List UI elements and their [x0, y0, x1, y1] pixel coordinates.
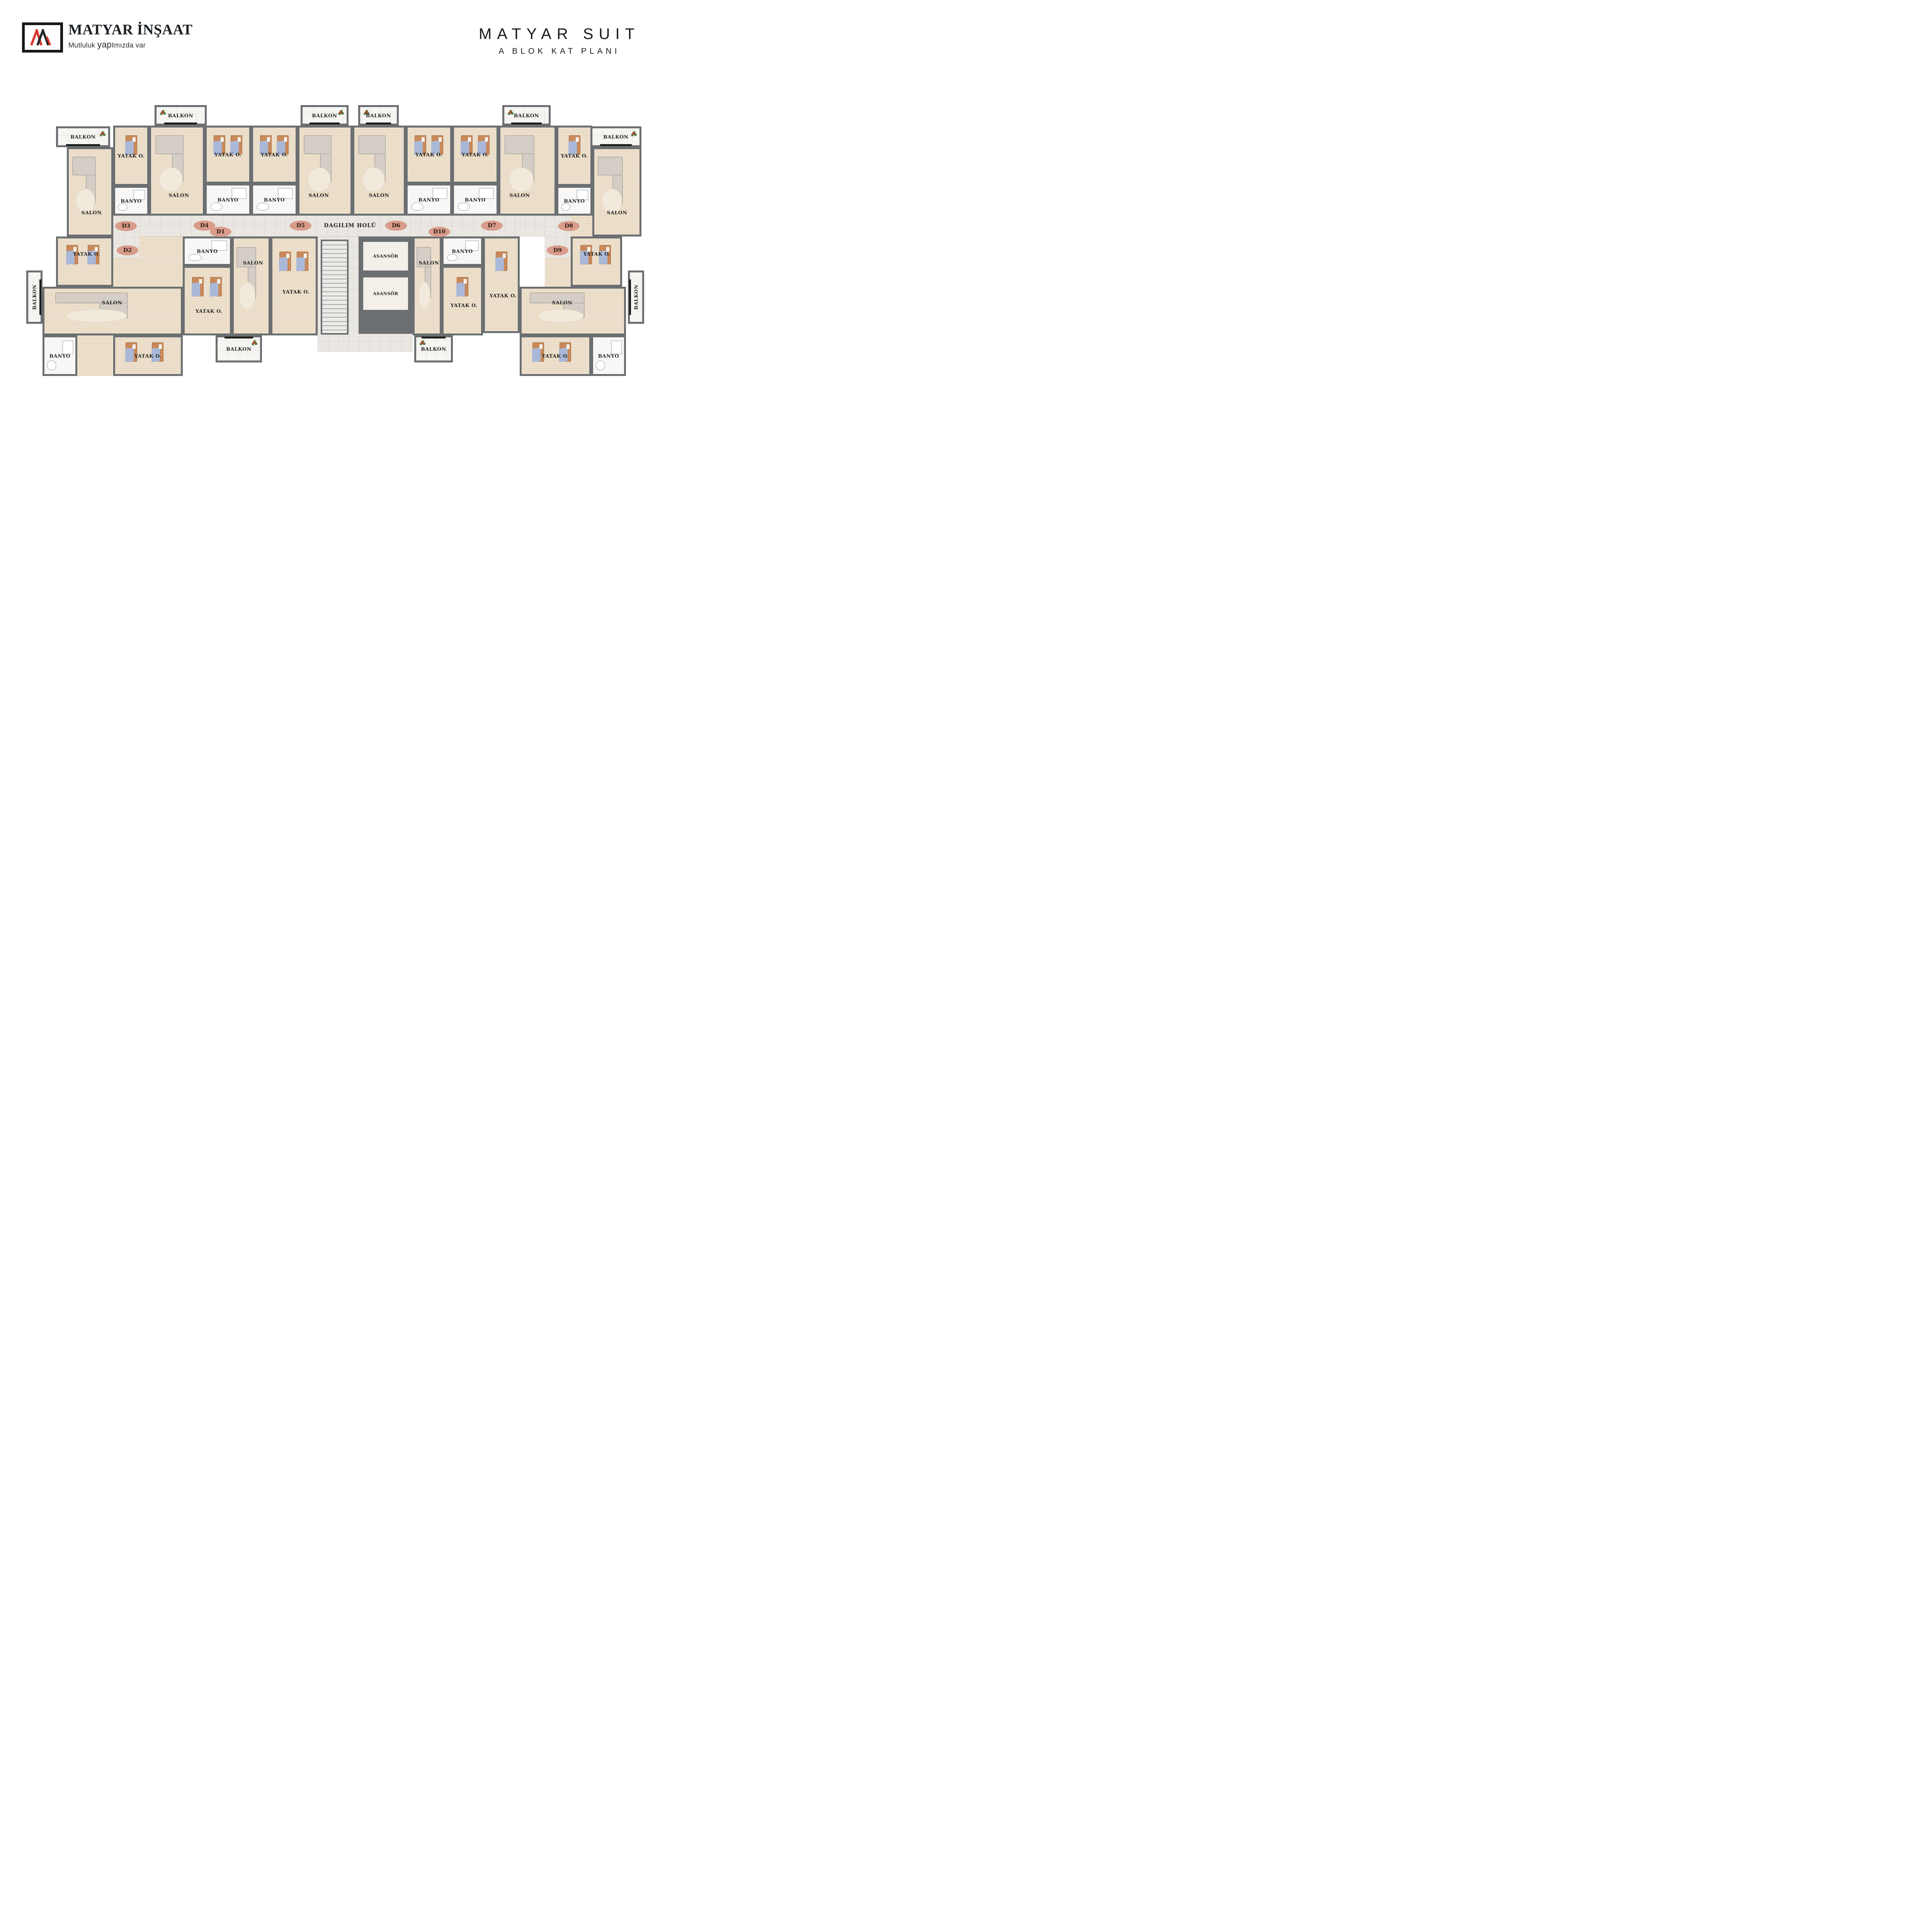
elevator-2-label: ASANSÖR	[373, 291, 398, 296]
bed-icon	[152, 342, 163, 362]
d5-yatak: YATAK O.	[251, 126, 298, 184]
d8-salon-label: SALON	[607, 210, 628, 216]
d3-yatak-label: YATAK O.	[118, 153, 145, 159]
unit-badge-D2: D2	[117, 245, 138, 255]
sofa-icon	[155, 135, 184, 154]
d2-balkon-label: BALKON	[32, 284, 37, 310]
rug-icon	[66, 309, 127, 322]
d10-salon-label: SALON	[419, 260, 439, 266]
bed-icon	[126, 135, 137, 155]
d6-salon-label: SALON	[369, 192, 389, 198]
sofa-icon	[72, 157, 96, 175]
rug-icon	[509, 167, 534, 192]
unit-badge-D5: D5	[290, 221, 311, 231]
window-icon	[66, 144, 100, 146]
d9-yatak-2-label: YATAK O.	[542, 353, 569, 359]
window-icon	[39, 279, 41, 315]
window-icon	[224, 337, 253, 338]
window-icon	[310, 122, 340, 124]
d4-salon-label: SALON	[169, 192, 189, 198]
bed-icon	[457, 277, 468, 296]
d4-yatak-label: YATAK O.	[214, 152, 241, 158]
d1-yatak-2: YATAK O.	[270, 236, 318, 335]
bed-icon	[297, 252, 308, 271]
corridor-label: DAGILIM HOLÜ	[324, 223, 376, 229]
unit-badge-D10: D10	[429, 227, 450, 237]
bed-icon	[192, 277, 204, 296]
flower-icon	[421, 341, 423, 344]
sink-icon	[47, 360, 56, 371]
d1-salon: SALON	[232, 236, 270, 335]
d8-banyo-label: BANYO	[564, 198, 585, 204]
d7-salon: SALON	[498, 126, 556, 216]
flower-icon	[101, 132, 104, 135]
d10-salon: SALON	[413, 236, 442, 335]
d7-banyo-label: BANYO	[465, 197, 486, 202]
d2-salon-label: SALON	[102, 300, 122, 306]
d2-banyo: BANYO	[43, 335, 77, 376]
d2-yatak-1-label: YATAK O.	[73, 251, 100, 257]
d10-yatak-2: YATAK O.	[483, 236, 520, 333]
window-icon	[366, 122, 391, 124]
d8-salon: SALON	[592, 147, 641, 236]
d9-yatak-1: YATAK O.	[571, 236, 622, 287]
sofa-icon	[598, 157, 623, 175]
window-icon	[629, 279, 631, 315]
sink-icon	[118, 203, 128, 211]
sink-icon	[257, 202, 269, 211]
d1-balkon: BALKON	[216, 335, 262, 362]
sink-icon	[561, 203, 571, 211]
elevator-2: ASANSÖR	[363, 277, 408, 310]
d2-hall-2	[113, 258, 183, 287]
flower-icon	[509, 111, 512, 114]
unit-badge-D8: D8	[558, 221, 580, 231]
sink-icon	[188, 254, 201, 262]
rug-icon	[159, 167, 183, 192]
d3-yatak: YATAK O.	[113, 126, 149, 186]
d2-yatak-2-label: YATAK O.	[134, 353, 162, 359]
d5-balkon: BALKON	[301, 105, 349, 126]
d8-balkon-label: BALKON	[603, 134, 629, 140]
d6-salon: SALON	[352, 126, 406, 216]
unit-badge-D9: D9	[547, 245, 568, 255]
d7-balkon-label: BALKON	[514, 112, 539, 118]
d8-banyo: BANYO	[556, 186, 592, 216]
rug-icon	[418, 282, 430, 310]
bed-icon	[496, 252, 507, 271]
d2-hall-3	[77, 335, 113, 376]
d4-banyo: BANYO	[205, 184, 251, 216]
d4-yatak: YATAK O.	[205, 126, 251, 184]
d5-banyo: BANYO	[251, 184, 298, 216]
bed-icon	[569, 135, 580, 155]
d6-yatak: YATAK O.	[406, 126, 452, 184]
d2-hall-1	[139, 236, 183, 258]
d1-yatak-1-label: YATAK O.	[196, 308, 223, 314]
d7-yatak-label: YATAK O.	[462, 152, 489, 158]
unit-badge-D3: D3	[115, 221, 137, 231]
sofa-icon	[304, 135, 332, 154]
d3-banyo: BANYO	[113, 186, 149, 216]
d5-balkon-label: BALKON	[312, 112, 337, 118]
d3-salon-label: SALON	[82, 210, 102, 216]
d5-salon-label: SALON	[309, 192, 329, 198]
shower-icon	[611, 340, 622, 354]
d5-salon: SALON	[298, 126, 352, 216]
d9-yatak-2: YATAK O.	[520, 335, 591, 376]
d2-salon: SALON	[43, 287, 183, 335]
rug-icon	[239, 282, 255, 310]
d9-balkon-label: BALKON	[633, 284, 639, 310]
unit-badge-D7: D7	[481, 221, 503, 231]
d3-balkon-label: BALKON	[70, 134, 96, 140]
d2-yatak-1: YATAK O.	[56, 236, 113, 287]
d10-yatak-2-label: YATAK O.	[490, 293, 517, 299]
sofa-icon	[358, 135, 386, 154]
d5-yatak-label: YATAK O.	[261, 152, 288, 158]
d1-banyo-label: BANYO	[197, 248, 218, 254]
d4-salon: SALON	[149, 126, 205, 216]
bed-icon	[279, 252, 291, 271]
sink-icon	[447, 254, 458, 262]
rug-icon	[308, 167, 331, 192]
d5-banyo-label: BANYO	[264, 197, 285, 202]
d9-yatak-1-label: YATAK O.	[583, 251, 611, 257]
rug-icon	[538, 309, 584, 322]
d7-balkon: BALKON	[502, 105, 551, 126]
d3-banyo-label: BANYO	[121, 198, 142, 204]
d9-hall	[545, 258, 571, 287]
d7-yatak: YATAK O.	[452, 126, 498, 184]
window-icon	[164, 122, 197, 124]
floor-plan: BALKONSALONYATAK O.BANYOBALKONSALONYATAK…	[0, 0, 678, 479]
d9-banyo: BANYO	[591, 335, 626, 376]
d10-yatak-1-label: YATAK O.	[451, 303, 478, 308]
d2-yatak-2: YATAK O.	[113, 335, 183, 376]
sofa-icon	[505, 135, 534, 154]
d6-banyo-label: BANYO	[418, 197, 440, 202]
d3-salon: SALON	[67, 147, 113, 236]
window-icon	[511, 122, 541, 124]
bed-icon	[532, 342, 544, 362]
unit-badge-D6: D6	[385, 221, 407, 231]
d8-yatak-label: YATAK O.	[561, 153, 588, 159]
flower-icon	[253, 341, 255, 344]
d10-banyo: BANYO	[442, 236, 483, 266]
flower-icon	[632, 132, 635, 135]
d4-balkon: BALKON	[155, 105, 207, 126]
d3-balkon: BALKON	[56, 126, 110, 147]
d4-banyo-label: BANYO	[218, 197, 239, 202]
sink-icon	[457, 202, 470, 211]
bed-icon	[210, 277, 222, 296]
d9-salon: SALON	[520, 287, 626, 335]
d9-balkon: BALKON	[628, 270, 644, 324]
d10-banyo-label: BANYO	[452, 248, 473, 254]
d1-yatak-2-label: YATAK O.	[282, 289, 310, 295]
d1-yatak-1: YATAK O.	[183, 266, 232, 335]
d6-balkon: BALKON	[358, 105, 399, 126]
window-icon	[600, 144, 632, 146]
rug-icon	[362, 167, 384, 192]
d9-salon-label: SALON	[552, 300, 573, 306]
d7-banyo: BANYO	[452, 184, 498, 216]
sink-icon	[411, 202, 424, 211]
d1-salon-label: SALON	[243, 260, 264, 266]
d6-yatak-label: YATAK O.	[415, 152, 442, 158]
d6-balkon-label: BALKON	[366, 112, 391, 118]
d1-banyo: BANYO	[183, 236, 232, 266]
d2-banyo-label: BANYO	[49, 353, 71, 359]
d1-balkon-label: BALKON	[226, 346, 252, 352]
elevator-1-label: ASANSÖR	[373, 254, 398, 259]
window-icon	[422, 337, 445, 338]
sink-icon	[595, 360, 605, 371]
flower-icon	[339, 111, 342, 114]
d9-banyo-label: BANYO	[598, 353, 619, 359]
unit-badge-D1: D1	[210, 227, 231, 237]
d10-balkon: BALKON	[414, 335, 453, 362]
d10-yatak-1: YATAK O.	[442, 266, 483, 335]
bed-icon	[560, 342, 571, 362]
d8-yatak: YATAK O.	[556, 126, 592, 186]
elevator-1: ASANSÖR	[363, 242, 408, 270]
shower-icon	[62, 340, 74, 354]
bed-icon	[126, 342, 137, 362]
d2-balkon: BALKON	[26, 270, 43, 324]
d6-banyo: BANYO	[406, 184, 452, 216]
stairwell	[321, 240, 349, 335]
flower-icon	[161, 111, 164, 114]
sink-icon	[210, 202, 223, 211]
d10-balkon-label: BALKON	[421, 346, 446, 352]
d8-balkon: BALKON	[590, 126, 641, 147]
d4-balkon-label: BALKON	[168, 112, 194, 118]
d7-salon-label: SALON	[510, 192, 530, 198]
